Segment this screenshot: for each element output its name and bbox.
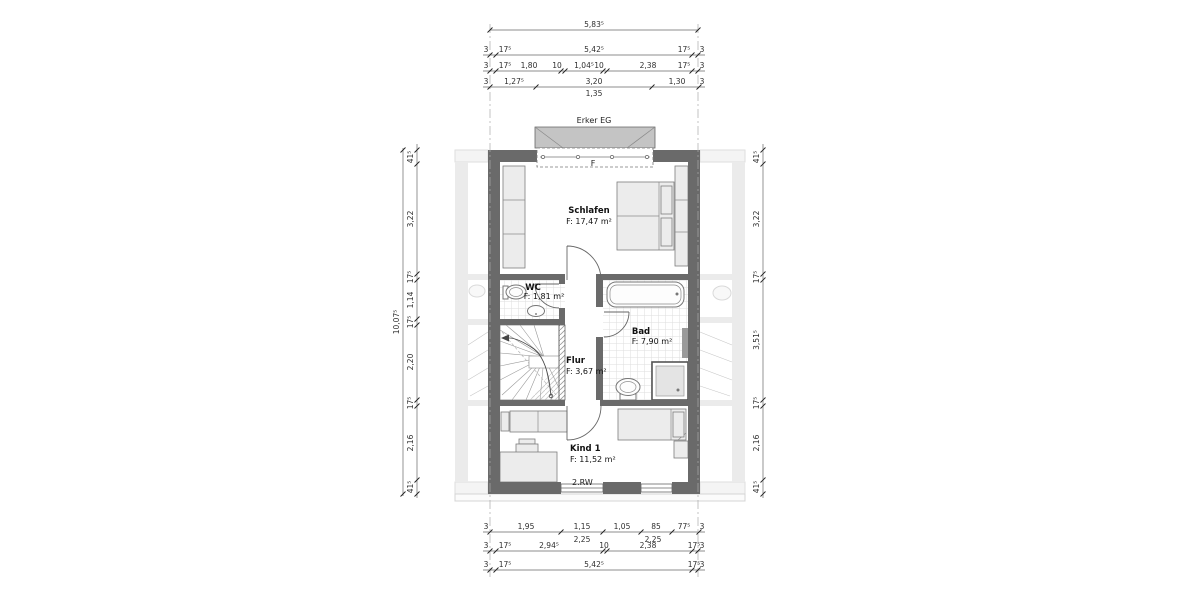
dim-label: 5,83⁵ [584,20,604,29]
floor-plan-drawing: 5,83⁵ 3 17⁵ 5,42⁵ 17⁵ 3 3 17⁵ 1,80 10 1,… [0,0,1200,600]
svg-text:17⁵: 17⁵ [406,397,415,410]
svg-text:1,27⁵: 1,27⁵ [504,77,524,86]
room-name-bad: Bad [632,327,650,337]
room-area-flur: F: 3,67 m² [566,367,607,376]
svg-text:17⁵: 17⁵ [406,316,415,329]
svg-text:1,80: 1,80 [521,61,538,70]
svg-text:2,16: 2,16 [752,434,761,451]
svg-text:17⁵: 17⁵ [499,61,512,70]
svg-text:2,16: 2,16 [406,434,415,451]
svg-text:3: 3 [484,45,489,54]
svg-text:3: 3 [484,61,489,70]
bathtub [607,282,684,307]
svg-text:17⁵: 17⁵ [678,45,691,54]
svg-text:41⁵: 41⁵ [406,481,415,494]
nightstand [674,441,688,458]
room-name-schlafen: Schlafen [568,206,609,216]
svg-text:2,25: 2,25 [574,535,591,544]
window-label: F [591,159,596,168]
lower-edge-band [455,494,745,501]
svg-text:41⁵: 41⁵ [406,151,415,164]
svg-text:3,22: 3,22 [752,210,761,227]
svg-text:17⁵: 17⁵ [678,61,691,70]
chair [501,412,509,431]
room-name-kind1: Kind 1 [570,444,601,454]
svg-text:1,30: 1,30 [669,77,686,86]
svg-text:17⁵: 17⁵ [688,560,701,569]
pillow [673,412,684,437]
svg-text:1,14: 1,14 [406,291,415,308]
schlafen-door [567,246,601,280]
svg-text:2,38: 2,38 [640,541,657,550]
svg-text:3: 3 [700,61,705,70]
radiator [682,328,688,358]
room-area-schlafen: F: 17,47 m² [566,217,612,226]
svg-text:17⁵: 17⁵ [499,45,512,54]
svg-text:2,94⁵: 2,94⁵ [539,541,559,550]
room-area-kind1: F: 11,52 m² [570,455,616,464]
svg-text:3: 3 [484,560,489,569]
svg-text:3: 3 [484,541,489,550]
pillow [661,218,672,246]
svg-text:17⁵: 17⁵ [499,560,512,569]
erker-label: Erker EG [577,116,612,125]
svg-text:1,95: 1,95 [518,522,535,531]
svg-text:3: 3 [700,560,705,569]
svg-text:3: 3 [700,522,705,531]
svg-text:3: 3 [484,77,489,86]
svg-text:10: 10 [599,541,609,550]
pillow [661,186,672,214]
shelf [519,439,535,444]
svg-text:3,20: 3,20 [586,77,603,86]
svg-text:17⁵: 17⁵ [688,541,701,550]
desk [510,411,567,432]
svg-text:41⁵: 41⁵ [752,481,761,494]
svg-text:1,05: 1,05 [614,522,631,531]
svg-text:41⁵: 41⁵ [752,151,761,164]
svg-text:85: 85 [651,522,661,531]
floor-plan-sheet: 5,83⁵ 3 17⁵ 5,42⁵ 17⁵ 3 3 17⁵ 1,80 10 1,… [0,0,1200,600]
neighbor-unit-right [700,150,745,494]
svg-text:1,04⁵: 1,04⁵ [574,61,594,70]
svg-text:3: 3 [700,541,705,550]
toilet [616,379,640,396]
svg-text:17⁵: 17⁵ [406,271,415,284]
stair-landing [529,356,559,368]
svg-text:3,22: 3,22 [406,210,415,227]
room-name-flur: Flur [566,356,586,366]
svg-text:3,51⁵: 3,51⁵ [752,330,761,350]
escape-route-label: 2.RW [572,478,593,487]
svg-text:3: 3 [484,522,489,531]
room-area-wc: F: 1,81 m² [524,292,565,301]
headboard-closet [675,166,688,266]
svg-text:17⁵: 17⁵ [752,271,761,284]
svg-text:1,15: 1,15 [574,522,591,531]
svg-text:77⁵: 77⁵ [678,522,691,531]
svg-text:10: 10 [594,61,604,70]
svg-text:17⁵: 17⁵ [499,541,512,550]
room-area-bad: F: 7,90 m² [632,337,673,346]
svg-text:10,07⁵: 10,07⁵ [392,310,401,334]
erker [535,127,655,148]
svg-text:2,20: 2,20 [406,353,415,370]
stairs [500,325,565,400]
svg-text:5,42⁵: 5,42⁵ [584,560,604,569]
svg-text:5,42⁵: 5,42⁵ [584,45,604,54]
stair-rail-wall [559,325,565,400]
wardrobe [503,166,525,268]
svg-text:2,38: 2,38 [640,61,657,70]
svg-text:3: 3 [700,45,705,54]
neighbor-unit-left [455,150,488,494]
svg-text:3: 3 [700,77,705,86]
svg-text:1,35: 1,35 [586,89,603,98]
svg-text:10: 10 [552,61,562,70]
svg-text:17⁵: 17⁵ [752,397,761,410]
dresser [500,452,557,482]
kind1-door [567,406,601,440]
